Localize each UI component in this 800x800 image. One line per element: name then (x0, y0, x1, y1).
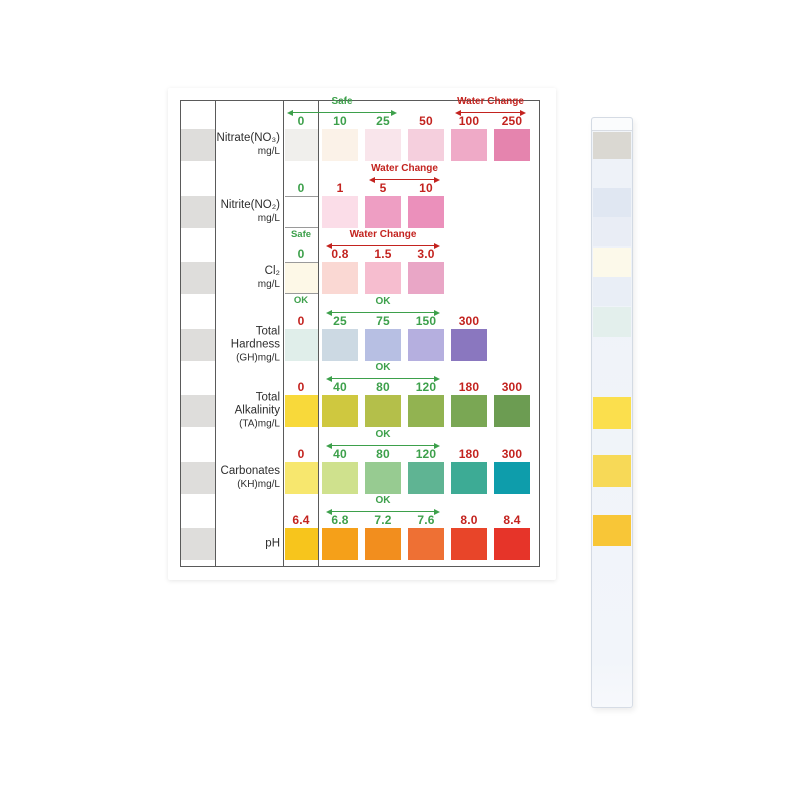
pad-value-nitrite-10: 10 (401, 181, 451, 195)
arrowhead-right-icon (434, 376, 440, 382)
range-arrow-label-carbonates-0: OK (323, 429, 443, 440)
color-pad-total-hardness-75 (365, 329, 401, 361)
product-photo: Nitrate(NO₃)mg/L0102550100250SafeWater C… (0, 0, 800, 800)
range-arrow-total-alkalinity-0 (326, 375, 440, 382)
range-arrow-label-ph-0: OK (323, 495, 443, 506)
range-arrow-label-total-hardness-0: OK (323, 296, 443, 307)
zero-pad-chlorine (285, 262, 318, 294)
row-label-line: (TA)mg/L (214, 418, 280, 431)
pad-value-nitrate-250: 250 (487, 114, 537, 128)
color-pad-carbonates-180 (451, 462, 487, 494)
column-separator-2 (283, 101, 284, 566)
arrowhead-right-icon (434, 177, 440, 183)
row-label-nitrite: Nitrite(NO₂)mg/L (214, 199, 280, 225)
zero-pad-nitrite (285, 196, 318, 228)
zero-pad-nitrate (285, 129, 318, 161)
color-pad-chlorine-0.8 (322, 262, 358, 294)
strip-guide-pad-total-alkalinity (181, 395, 215, 427)
column-separator-3 (318, 101, 319, 566)
strip-guide-pad-ph (181, 528, 215, 560)
color-pad-nitrate-100 (451, 129, 487, 161)
color-pad-total-alkalinity-120 (408, 395, 444, 427)
test-strip-top-cap (592, 118, 632, 131)
carbonates-pad (593, 455, 631, 487)
zero-note-nitrite: Safe (276, 229, 326, 240)
arrowhead-right-icon (434, 243, 440, 249)
row-label-carbonates: Carbonates(KH)mg/L (214, 465, 280, 491)
color-pad-carbonates-80 (365, 462, 401, 494)
strip-guide-pad-nitrite (181, 196, 215, 228)
arrow-line (375, 179, 434, 181)
range-arrow-label-nitrate-1: Water Change (431, 96, 551, 107)
pad-value-total-hardness-300: 300 (444, 314, 494, 328)
row-label-line: Nitrate(NO₃) (214, 132, 280, 145)
arrow-line (332, 378, 434, 380)
strip-guide-pad-carbonates (181, 462, 215, 494)
color-pad-nitrite-5 (365, 196, 401, 228)
range-arrow-nitrate-0 (287, 109, 397, 116)
nitrite-pad (593, 188, 631, 217)
row-label-line: Carbonates (214, 465, 280, 478)
row-label-ph: pH (214, 538, 280, 551)
row-label-line: pH (214, 538, 280, 551)
color-pad-chlorine-3.0 (408, 262, 444, 294)
range-arrow-label-nitrate-0: Safe (282, 96, 402, 107)
color-pad-nitrate-10 (322, 129, 358, 161)
range-arrow-label-chlorine-0: Water Change (323, 229, 443, 240)
row-label-line: (GH)mg/L (214, 352, 280, 365)
row-label-nitrate: Nitrate(NO₃)mg/L (214, 132, 280, 158)
row-label-line: Cl₂ (214, 265, 280, 278)
zero-pad-ph (285, 528, 318, 560)
arrowhead-right-icon (391, 110, 397, 116)
range-arrow-chlorine-0 (326, 242, 440, 249)
row-label-line: mg/L (214, 145, 280, 158)
zero-pad-total-alkalinity (285, 395, 318, 427)
arrow-line (332, 445, 434, 447)
pad-value-total-alkalinity-300: 300 (487, 380, 537, 394)
color-pad-total-alkalinity-40 (322, 395, 358, 427)
test-strip (591, 117, 633, 708)
color-pad-ph-6.8 (322, 528, 358, 560)
range-arrow-carbonates-0 (326, 442, 440, 449)
color-pad-ph-8.4 (494, 528, 530, 560)
color-pad-nitrate-25 (365, 129, 401, 161)
color-pad-ph-7.6 (408, 528, 444, 560)
range-arrow-ph-0 (326, 508, 440, 515)
row-label-line: Alkalinity (214, 405, 280, 418)
blank-pad-1 (593, 217, 631, 246)
row-label-line: Total (214, 392, 280, 405)
color-pad-total-hardness-150 (408, 329, 444, 361)
color-pad-total-alkalinity-80 (365, 395, 401, 427)
arrow-line (293, 112, 391, 114)
strip-guide-pad-nitrate (181, 129, 215, 161)
arrow-line (332, 312, 434, 314)
color-pad-carbonates-40 (322, 462, 358, 494)
color-pad-total-alkalinity-180 (451, 395, 487, 427)
row-label-total-hardness: TotalHardness(GH)mg/L (214, 326, 280, 365)
color-pad-total-hardness-25 (322, 329, 358, 361)
cl2-pad (593, 248, 631, 277)
zero-pad-total-hardness (285, 329, 318, 361)
hardness-pad (593, 307, 631, 337)
strip-guide-pad-chlorine (181, 262, 215, 294)
row-label-chlorine: Cl₂mg/L (214, 265, 280, 291)
row-label-line: Nitrite(NO₂) (214, 199, 280, 212)
arrowhead-right-icon (434, 310, 440, 316)
pad-value-carbonates-300: 300 (487, 447, 537, 461)
color-pad-ph-7.2 (365, 528, 401, 560)
range-arrow-label-total-alkalinity-0: OK (323, 362, 443, 373)
arrowhead-right-icon (434, 443, 440, 449)
pad-value-chlorine-3.0: 3.0 (401, 247, 451, 261)
arrowhead-right-icon (434, 509, 440, 515)
color-pad-nitrite-10 (408, 196, 444, 228)
arrow-line (332, 511, 434, 513)
range-arrow-label-nitrite-0: Water Change (345, 163, 465, 174)
alkalinity-pad (593, 397, 631, 429)
row-label-line: (KH)mg/L (214, 478, 280, 491)
row-label-line: mg/L (214, 212, 280, 225)
color-pad-carbonates-120 (408, 462, 444, 494)
zero-note-chlorine: OK (276, 295, 326, 306)
color-pad-ph-8.0 (451, 528, 487, 560)
range-arrow-total-hardness-0 (326, 309, 440, 316)
row-label-line: Total (214, 326, 280, 339)
color-pad-nitrate-50 (408, 129, 444, 161)
arrowhead-right-icon (520, 110, 526, 116)
nitrate-pad (593, 132, 631, 159)
row-label-line: Hardness (214, 339, 280, 352)
range-arrow-nitrate-1 (455, 109, 526, 116)
blank-pad-2 (593, 277, 631, 306)
row-label-total-alkalinity: TotalAlkalinity(TA)mg/L (214, 392, 280, 431)
color-pad-carbonates-300 (494, 462, 530, 494)
color-pad-nitrate-250 (494, 129, 530, 161)
color-pad-nitrite-1 (322, 196, 358, 228)
pad-value-ph-8.4: 8.4 (487, 513, 537, 527)
color-pad-chlorine-1.5 (365, 262, 401, 294)
color-pad-total-hardness-300 (451, 329, 487, 361)
ph-pad (593, 515, 631, 546)
arrow-line (461, 112, 520, 114)
arrow-line (332, 245, 434, 247)
range-arrow-nitrite-0 (369, 176, 440, 183)
row-label-line: mg/L (214, 278, 280, 291)
zero-pad-carbonates (285, 462, 318, 494)
color-pad-total-alkalinity-300 (494, 395, 530, 427)
strip-guide-pad-total-hardness (181, 329, 215, 361)
